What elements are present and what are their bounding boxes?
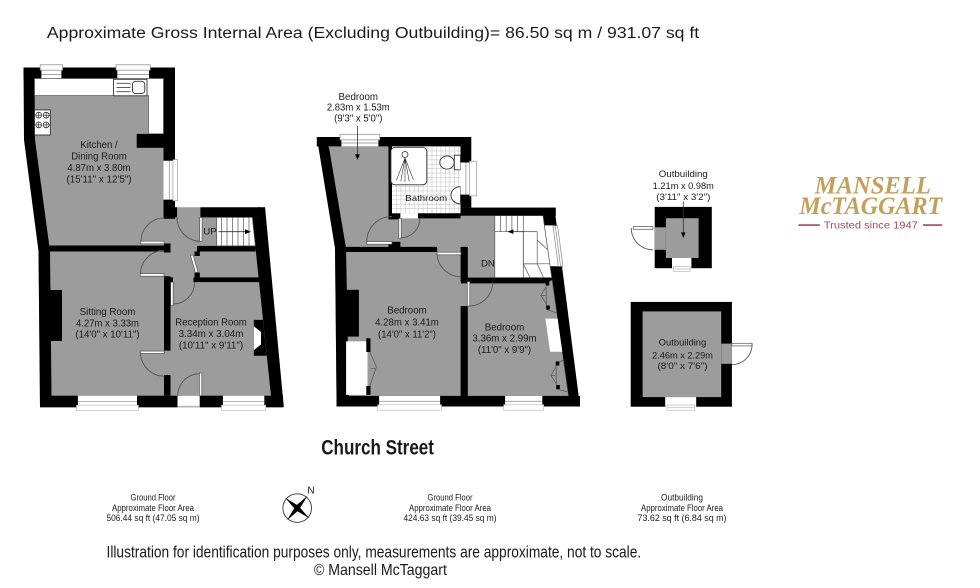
svg-text:N: N [307, 486, 314, 497]
svg-text:(9'3" x 5'0"): (9'3" x 5'0") [334, 114, 382, 125]
svg-text:2.83m x 1.53m: 2.83m x 1.53m [327, 103, 390, 114]
svg-text:(3'11" x 3'2"): (3'11" x 3'2") [656, 192, 710, 202]
svg-text:(14'0" x 10'11"): (14'0" x 10'11") [75, 330, 139, 341]
svg-text:Approximate Floor Area: Approximate Floor Area [641, 503, 724, 514]
svg-text:Approximate Gross Internal Are: Approximate Gross Internal Area (Excludi… [47, 25, 700, 42]
svg-text:Outbuilding: Outbuilding [661, 492, 703, 503]
svg-text:Bedroom: Bedroom [339, 92, 379, 103]
svg-text:(15'11" x 12'5"): (15'11" x 12'5") [66, 175, 131, 186]
svg-text:McTAGGART: McTAGGART [798, 193, 943, 220]
svg-text:3.36m x 2.99m: 3.36m x 2.99m [472, 334, 536, 345]
svg-text:3.34m x 3.04m: 3.34m x 3.04m [179, 329, 244, 340]
svg-text:Kitchen /: Kitchen / [80, 140, 118, 151]
svg-text:Trusted since 1947: Trusted since 1947 [824, 220, 918, 232]
svg-text:Ground Floor: Ground Floor [428, 492, 473, 503]
svg-text:4.28m x 3.41m: 4.28m x 3.41m [375, 317, 439, 328]
svg-text:506.44 sq ft (47.05 sq m): 506.44 sq ft (47.05 sq m) [107, 513, 200, 524]
svg-text:1.21m x 0.98m: 1.21m x 0.98m [653, 181, 714, 191]
svg-text:DN: DN [481, 259, 495, 269]
svg-text:(10'11" x 9'11"): (10'11" x 9'11") [179, 340, 243, 351]
svg-text:(8'0" x 7'6"): (8'0" x 7'6") [658, 361, 708, 371]
svg-text:4.27m x 3.33m: 4.27m x 3.33m [76, 319, 139, 330]
svg-text:Outbuilding: Outbuilding [659, 169, 708, 179]
svg-text:Illustration for identificatio: Illustration for identification purposes… [107, 543, 642, 561]
svg-text:Ground Floor: Ground Floor [131, 492, 176, 503]
svg-text:Outbuilding: Outbuilding [659, 338, 707, 348]
svg-text:(11'0" x 9'9"): (11'0" x 9'9") [478, 345, 531, 356]
svg-text:424.63 sq ft (39.45 sq m): 424.63 sq ft (39.45 sq m) [404, 513, 497, 524]
svg-text:Bedroom: Bedroom [387, 305, 427, 316]
svg-text:Bedroom: Bedroom [485, 323, 525, 334]
svg-text:73.62 sq ft (6.84 sq m): 73.62 sq ft (6.84 sq m) [638, 513, 727, 524]
svg-text:Bathroom: Bathroom [405, 193, 447, 203]
svg-text:4.87m x 3.80m: 4.87m x 3.80m [67, 163, 130, 174]
svg-text:UP: UP [203, 227, 217, 237]
svg-text:Approximate Floor Area: Approximate Floor Area [112, 503, 195, 514]
svg-text:Church Street: Church Street [321, 437, 434, 460]
svg-text:Approximate Floor Area: Approximate Floor Area [409, 503, 492, 514]
svg-text:Reception Room: Reception Room [175, 317, 246, 328]
svg-text:Sitting Room: Sitting Room [80, 307, 136, 318]
svg-text:(14'0" x 11'2"): (14'0" x 11'2") [378, 330, 436, 341]
svg-text:Dining Room: Dining Room [71, 152, 127, 163]
svg-text:© Mansell McTaggart: © Mansell McTaggart [314, 562, 447, 579]
svg-text:2.46m x 2.29m: 2.46m x 2.29m [652, 350, 713, 360]
